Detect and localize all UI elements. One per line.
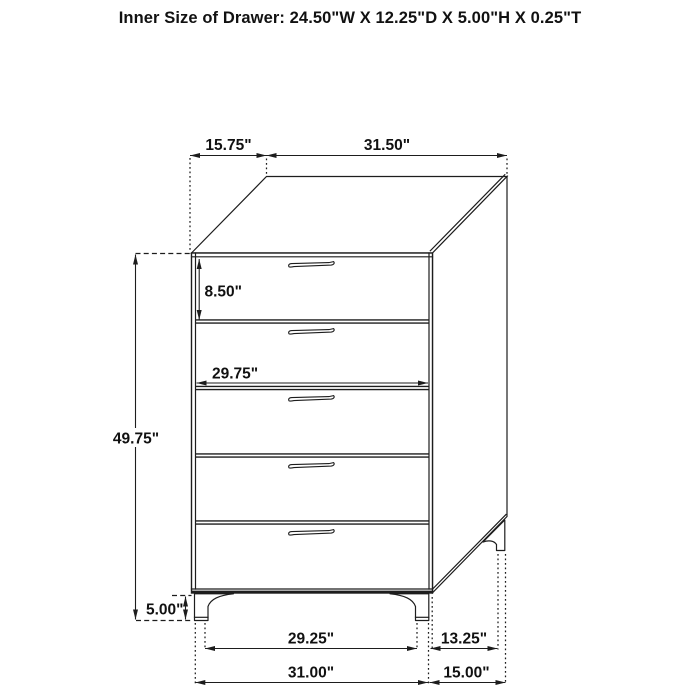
dim-side-depth-label: 15.00" [443,665,489,682]
dim-drawer-height-label: 8.50" [205,284,243,301]
dim-side-feet-gap-label: 13.25" [441,631,487,648]
chest-line-art [192,175,508,621]
dim-leg-height-label: 5.00" [146,602,184,619]
dim-body-height-label: 49.75" [113,431,159,448]
chest-diagram-svg: 15.75" 31.50" 8.50" 29.75" 49.75" 5.00" … [0,0,700,700]
dim-drawer-width-label: 29.75" [212,366,258,383]
front-left-leg [195,594,234,621]
product-dimension-diagram: Inner Size of Drawer: 24.50"W X 12.25"D … [0,0,700,700]
dim-feet-inner-label: 29.25" [288,631,334,648]
dim-feet-outer-label: 31.00" [288,665,334,682]
front-right-leg [390,594,429,621]
chest-front-face [192,253,433,593]
dim-top-width-label: 31.50" [364,137,410,154]
dim-top-depth-label: 15.75" [205,137,251,154]
